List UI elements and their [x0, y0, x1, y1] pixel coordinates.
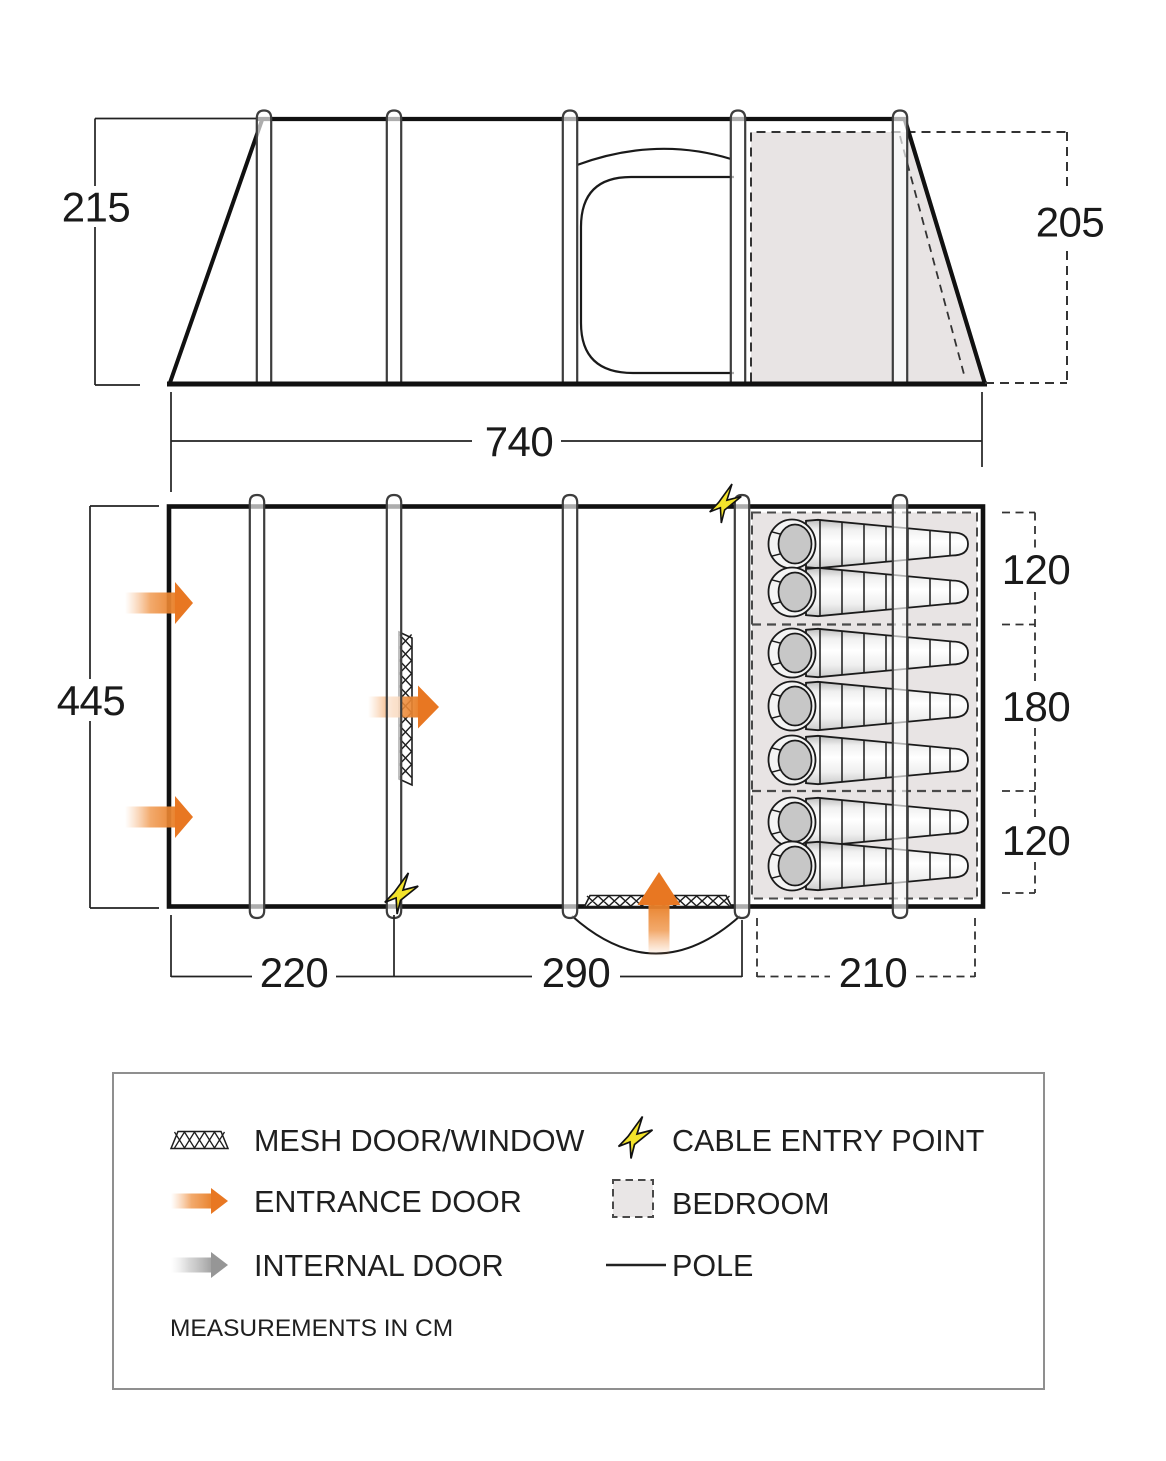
svg-text:MESH DOOR/WINDOW: MESH DOOR/WINDOW [254, 1124, 585, 1158]
svg-text:CABLE ENTRY POINT: CABLE ENTRY POINT [672, 1124, 984, 1158]
svg-text:BEDROOM: BEDROOM [672, 1187, 830, 1221]
svg-text:120: 120 [1002, 817, 1071, 864]
svg-text:220: 220 [260, 949, 329, 996]
svg-text:120: 120 [1002, 546, 1071, 593]
svg-text:445: 445 [57, 677, 126, 724]
svg-text:INTERNAL DOOR: INTERNAL DOOR [254, 1249, 504, 1283]
svg-text:ENTRANCE DOOR: ENTRANCE DOOR [254, 1185, 522, 1219]
svg-text:740: 740 [485, 418, 554, 465]
svg-text:205: 205 [1036, 199, 1105, 246]
svg-text:180: 180 [1002, 683, 1071, 730]
svg-text:MEASUREMENTS IN CM: MEASUREMENTS IN CM [170, 1315, 453, 1342]
svg-text:215: 215 [62, 184, 131, 231]
svg-text:POLE: POLE [672, 1249, 753, 1283]
svg-text:210: 210 [839, 949, 908, 996]
svg-text:290: 290 [542, 949, 611, 996]
